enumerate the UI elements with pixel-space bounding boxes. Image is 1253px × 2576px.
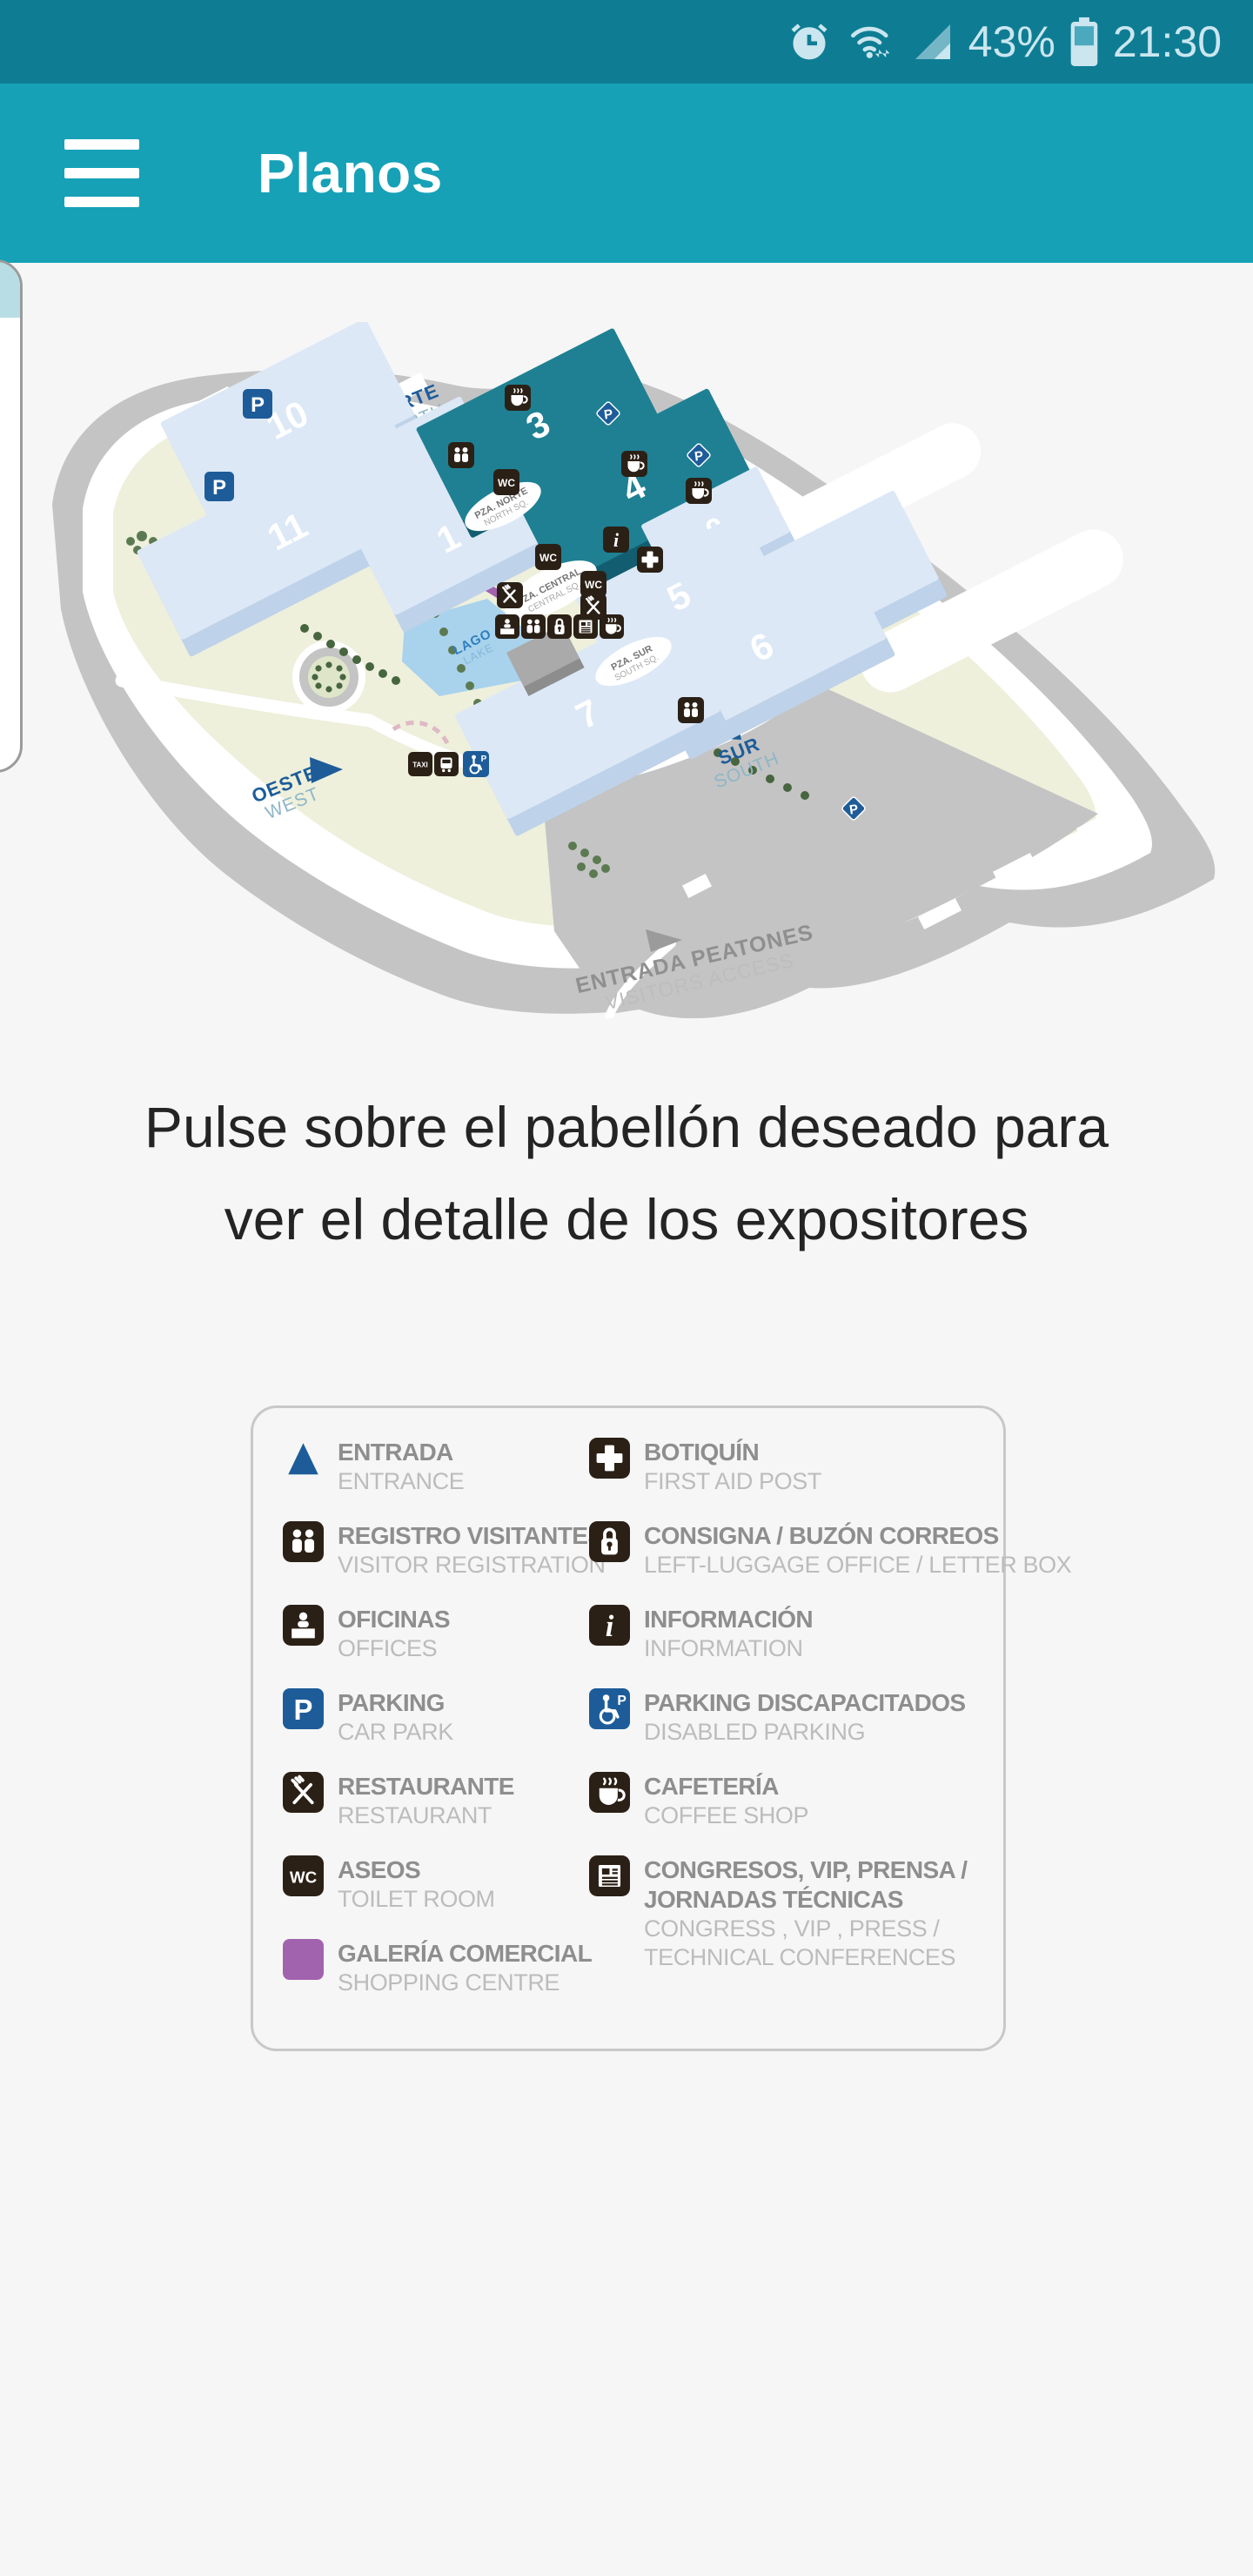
toilets-icon [283, 1855, 324, 1896]
hamburger-icon [64, 139, 139, 150]
restaurant-icon [497, 582, 523, 608]
taxi-icon [408, 752, 432, 776]
bus-icon [434, 752, 459, 776]
clock-time: 21:30 [1113, 17, 1222, 67]
venue-map[interactable]: NORTE NORTH SUR SOUTH OESTE WEST 10 [0, 322, 1253, 1018]
legend-item-entrada: ENTRADAENTRANCE [283, 1438, 589, 1496]
legend-item-cafeteria: CAFETERÍACOFFEE SHOP [589, 1772, 1071, 1830]
disabled-parking-icon [589, 1688, 630, 1729]
alarm-icon [786, 18, 833, 65]
first-aid-icon [589, 1438, 630, 1479]
toilets-icon [535, 544, 561, 570]
coffee-shop-icon [589, 1772, 630, 1813]
legend-item-parking-discapacitados: PARKING DISCAPACITADOSDISABLED PARKING [589, 1688, 1071, 1747]
entrance-triangle-icon [283, 1438, 324, 1479]
coffee-shop-icon [686, 478, 712, 504]
toilets-icon [580, 571, 606, 597]
legend-item-botiquin: BOTIQUÍNFIRST AID POST [589, 1438, 1071, 1496]
legend-card: ENTRADAENTRANCE REGISTRO VISITANTESVISIT… [251, 1405, 1006, 2051]
wifi-icon [847, 18, 897, 65]
first-aid-icon [637, 547, 663, 573]
coffee-shop-icon [505, 385, 531, 411]
roundabout [296, 644, 362, 710]
legend-item-consigna: CONSIGNA / BUZÓN CORREOSLEFT-LUGGAGE OFF… [589, 1521, 1071, 1580]
coffee-shop-icon [621, 451, 647, 477]
disabled-parking-icon [463, 751, 489, 777]
battery-icon [1069, 17, 1099, 67]
information-icon [603, 527, 629, 553]
shopping-gallery-icon [283, 1939, 324, 1980]
visitor-registration-icon [521, 614, 546, 639]
parking-icon [204, 472, 234, 501]
legend-item-informacion: INFORMACIÓNINFORMATION [589, 1605, 1071, 1663]
information-icon [589, 1605, 630, 1646]
toilets-icon [493, 469, 519, 495]
visitor-registration-icon [283, 1521, 324, 1562]
left-luggage-icon [547, 614, 572, 639]
offices-icon [283, 1605, 324, 1646]
app-bar: Planos [0, 84, 1253, 263]
legend-item-aseos: ASEOSTOILET ROOM [283, 1855, 589, 1914]
battery-percent: 43% [968, 17, 1055, 67]
congress-icon [589, 1855, 630, 1896]
restaurant-icon [283, 1772, 324, 1813]
status-bar: 43% 21:30 [0, 0, 1253, 84]
legend-item-congresos: CONGRESOS, VIP, PRENSA / JORNADAS TÉCNIC… [589, 1855, 1071, 1972]
legend-item-registro: REGISTRO VISITANTESVISITOR REGISTRATION [283, 1521, 589, 1580]
visitor-registration-icon [448, 442, 474, 468]
app-screen: 43% 21:30 Planos [0, 0, 1253, 2576]
offices-icon [495, 614, 519, 639]
visitor-registration-icon [678, 697, 704, 723]
page-title: Planos [258, 141, 443, 205]
legend-item-restaurante: RESTAURANTERESTAURANT [283, 1772, 589, 1830]
parking-icon [243, 389, 272, 419]
parking-icon [283, 1688, 324, 1729]
legend-item-oficinas: OFICINASOFFICES [283, 1605, 589, 1663]
legend-left-column: ENTRADAENTRANCE REGISTRO VISITANTESVISIT… [283, 1438, 589, 2023]
signal-icon [911, 20, 955, 64]
congress-icon [573, 614, 598, 639]
instruction-text: Pulse sobre el pabellón deseado para ver… [0, 1081, 1253, 1265]
legend-right-column: BOTIQUÍNFIRST AID POST CONSIGNA / BUZÓN … [589, 1438, 1071, 2023]
left-luggage-icon [589, 1521, 630, 1562]
legend-item-parking: PARKINGCAR PARK [283, 1688, 589, 1747]
legend-item-galeria: GALERÍA COMERCIALSHOPPING CENTRE [283, 1939, 589, 1997]
coffee-shop-icon [600, 614, 624, 639]
menu-button[interactable] [64, 139, 139, 207]
